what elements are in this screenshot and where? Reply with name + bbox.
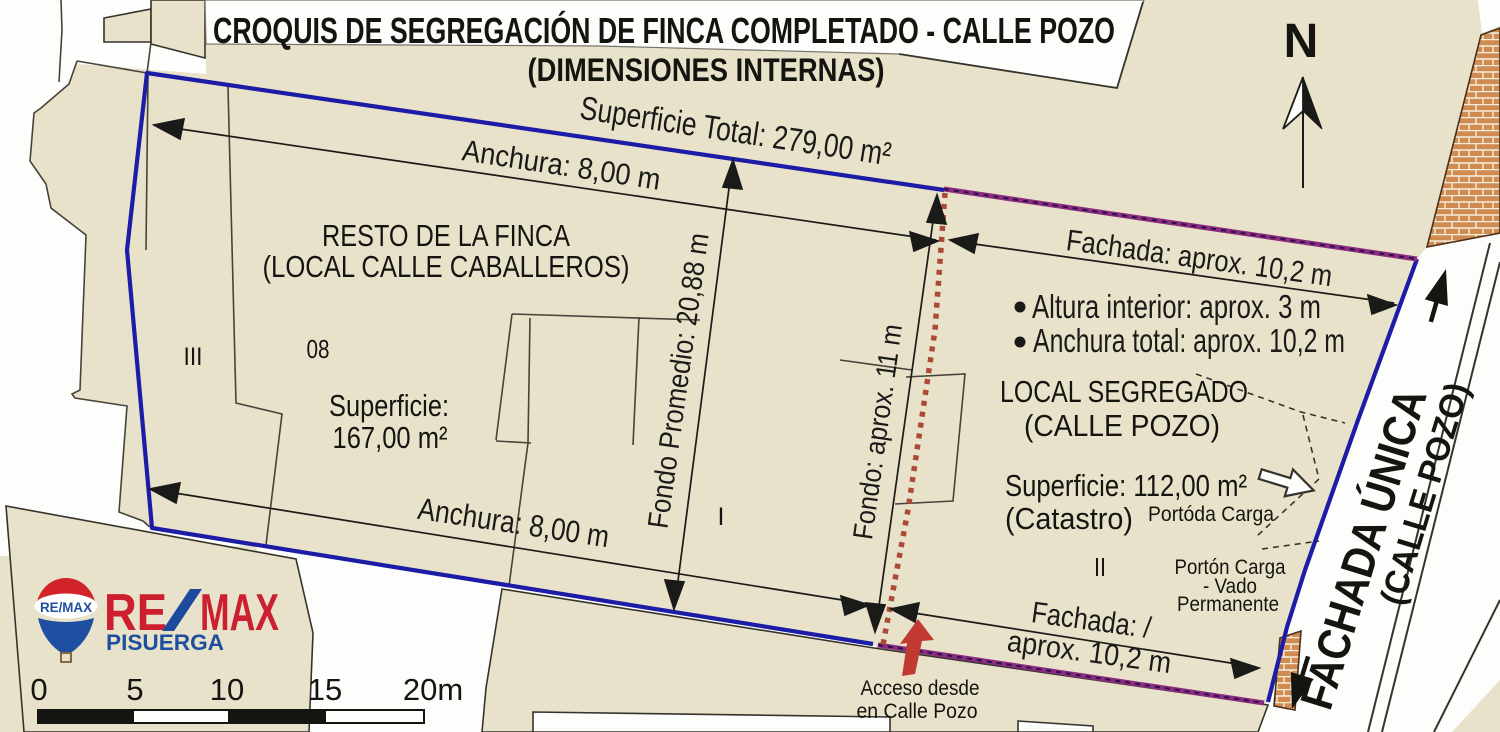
svg-text:Altura interior: aprox. 3 m: Altura interior: aprox. 3 m bbox=[1032, 288, 1321, 325]
svg-text:(DIMENSIONES INTERNAS): (DIMENSIONES INTERNAS) bbox=[528, 52, 885, 88]
svg-text:LOCAL SEGREGADO: LOCAL SEGREGADO bbox=[1000, 374, 1248, 409]
svg-text:Acceso desde: Acceso desde bbox=[861, 677, 980, 700]
svg-text:15: 15 bbox=[308, 672, 342, 707]
svg-text:en Calle Pozo: en Calle Pozo bbox=[857, 700, 978, 723]
svg-text:0: 0 bbox=[30, 672, 47, 707]
svg-text:(Catastro): (Catastro) bbox=[1005, 501, 1133, 536]
svg-text:20m: 20m bbox=[403, 672, 463, 707]
svg-text:RE/MAX: RE/MAX bbox=[40, 599, 93, 615]
svg-text:08: 08 bbox=[307, 334, 330, 364]
svg-text:CROQUIS DE SEGREGACIÓN DE FINC: CROQUIS DE SEGREGACIÓN DE FINCA COMPLETA… bbox=[213, 9, 1115, 51]
svg-text:N: N bbox=[1284, 15, 1319, 68]
svg-text:I: I bbox=[718, 503, 725, 531]
svg-text:II: II bbox=[1094, 552, 1106, 582]
svg-text:PISUERGA: PISUERGA bbox=[106, 630, 224, 655]
svg-text:III: III bbox=[184, 343, 203, 371]
svg-text:10: 10 bbox=[210, 672, 244, 707]
svg-text:RESTO DE LA FINCA: RESTO DE LA FINCA bbox=[322, 218, 570, 253]
svg-text:Permanente: Permanente bbox=[1177, 593, 1279, 616]
svg-text:Superficie:: Superficie: bbox=[329, 388, 449, 423]
svg-text:167,00 m²: 167,00 m² bbox=[333, 420, 448, 455]
svg-text:Portóda Carga: Portóda Carga bbox=[1148, 503, 1274, 526]
svg-text:5: 5 bbox=[126, 672, 143, 707]
svg-text:Superficie: 112,00 m²: Superficie: 112,00 m² bbox=[1005, 468, 1247, 503]
svg-text:(LOCAL CALLE CABALLEROS): (LOCAL CALLE CABALLEROS) bbox=[263, 249, 630, 284]
svg-text:(CALLE POZO): (CALLE POZO) bbox=[1024, 408, 1220, 443]
svg-text:Anchura total: aprox. 10,2 m: Anchura total: aprox. 10,2 m bbox=[1033, 322, 1345, 359]
